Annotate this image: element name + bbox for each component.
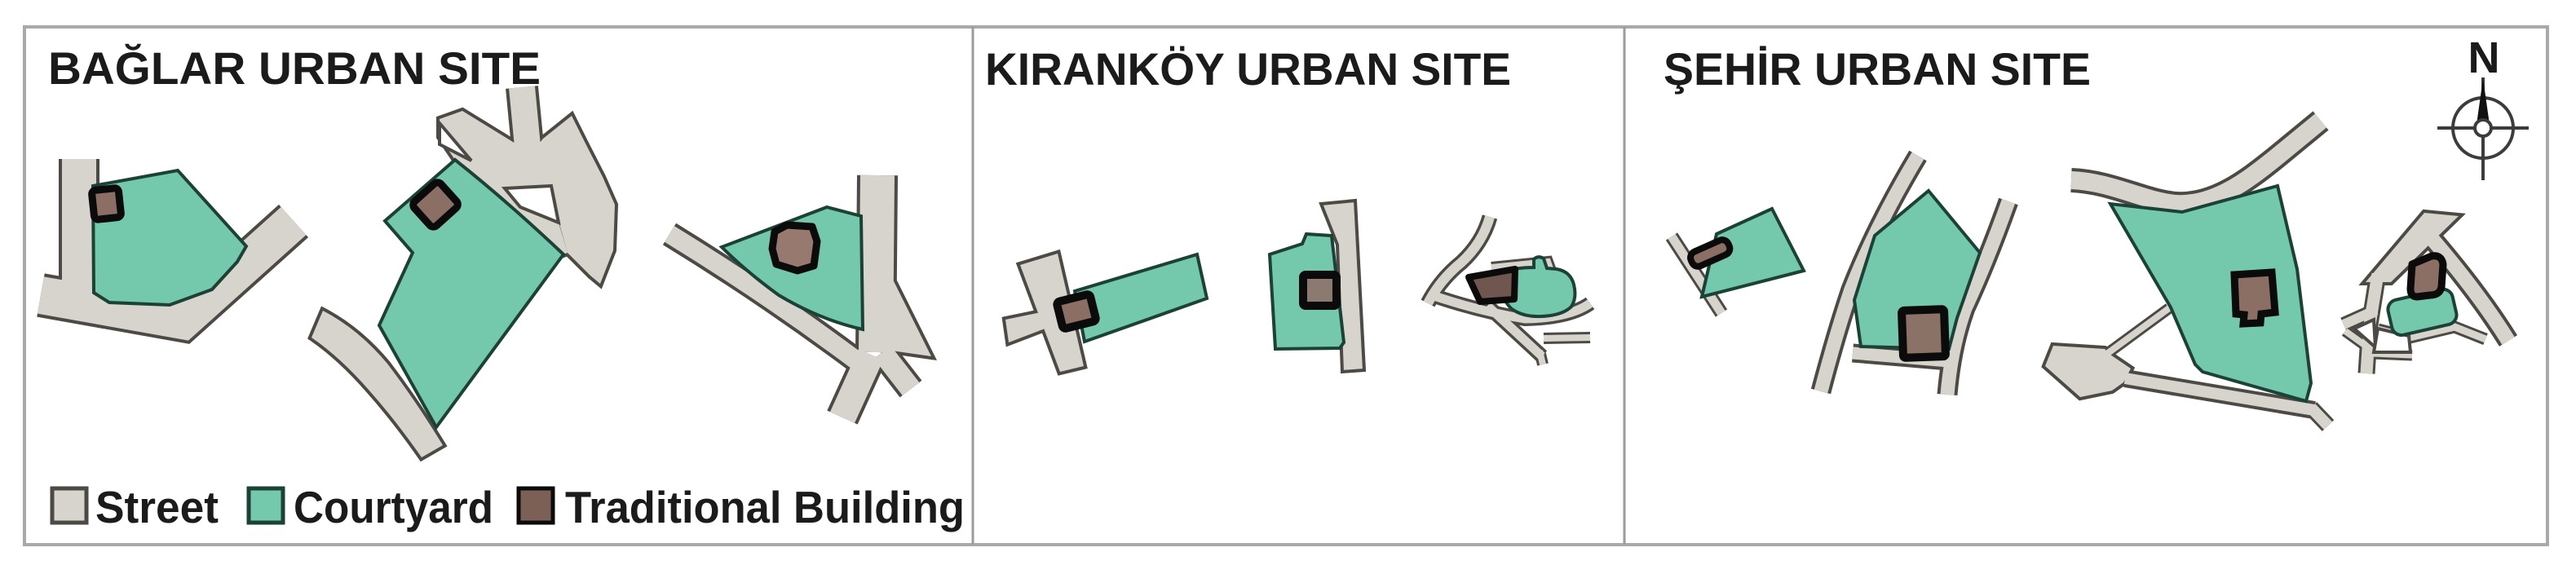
svg-text:ŞEHİR URBAN SITE: ŞEHİR URBAN SITE [1664, 43, 2091, 95]
svg-text:KIRANKÖY URBAN SITE: KIRANKÖY URBAN SITE [985, 43, 1511, 95]
svg-text:Courtyard: Courtyard [294, 482, 493, 532]
svg-text:Traditional Building: Traditional Building [565, 482, 965, 532]
svg-text:BAĞLAR URBAN SITE: BAĞLAR URBAN SITE [48, 42, 541, 94]
svg-text:Street: Street [95, 482, 219, 532]
svg-text:N: N [2468, 33, 2500, 82]
